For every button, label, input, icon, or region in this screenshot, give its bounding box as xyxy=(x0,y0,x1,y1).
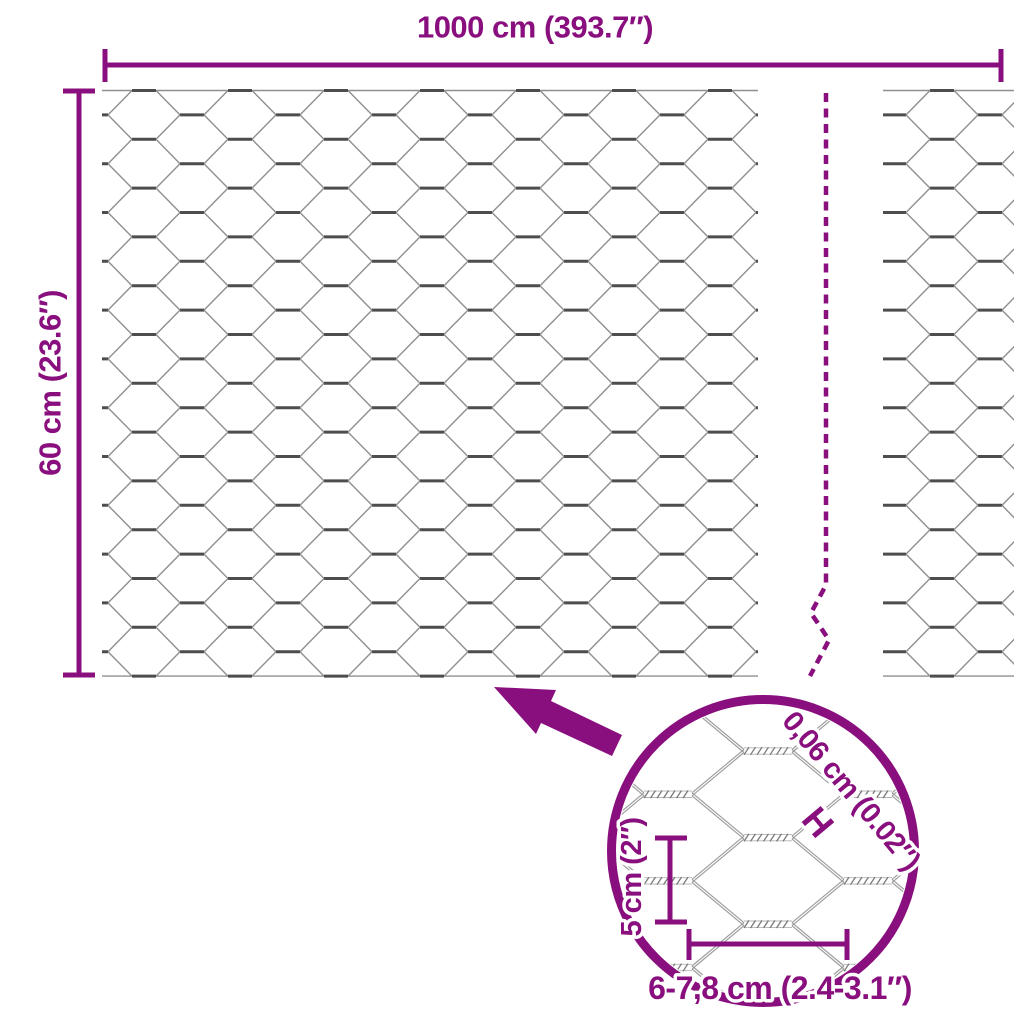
width-dimension-label: 1000 cm (393.7″) xyxy=(417,10,653,45)
magnifier: 5 cm (2″) 6-7,8 cm (2.4-3.1″) 0,06 cm (0… xyxy=(392,661,1024,1015)
mesh-panel-right xyxy=(762,91,1024,677)
diagram-canvas: 1000 cm (393.7″) 60 cm (23.6″) 5 cm (2″)… xyxy=(0,0,1024,1024)
height-dimension-label: 60 cm (23.6″) xyxy=(33,290,68,476)
cell-width-label: 6-7,8 cm (2.4-3.1″) xyxy=(648,970,912,1006)
mesh-panel-left xyxy=(0,91,900,677)
break-line xyxy=(810,93,829,676)
product-dimension-diagram: 1000 cm (393.7″) 60 cm (23.6″) 5 cm (2″)… xyxy=(0,0,1024,1024)
cell-height-label: 5 cm (2″) xyxy=(616,818,648,937)
magnifier-circle xyxy=(612,700,915,1003)
height-dimension: 60 cm (23.6″) xyxy=(33,91,96,675)
width-dimension: 1000 cm (393.7″) xyxy=(105,10,1001,83)
zoom-arrow-icon xyxy=(494,687,622,756)
